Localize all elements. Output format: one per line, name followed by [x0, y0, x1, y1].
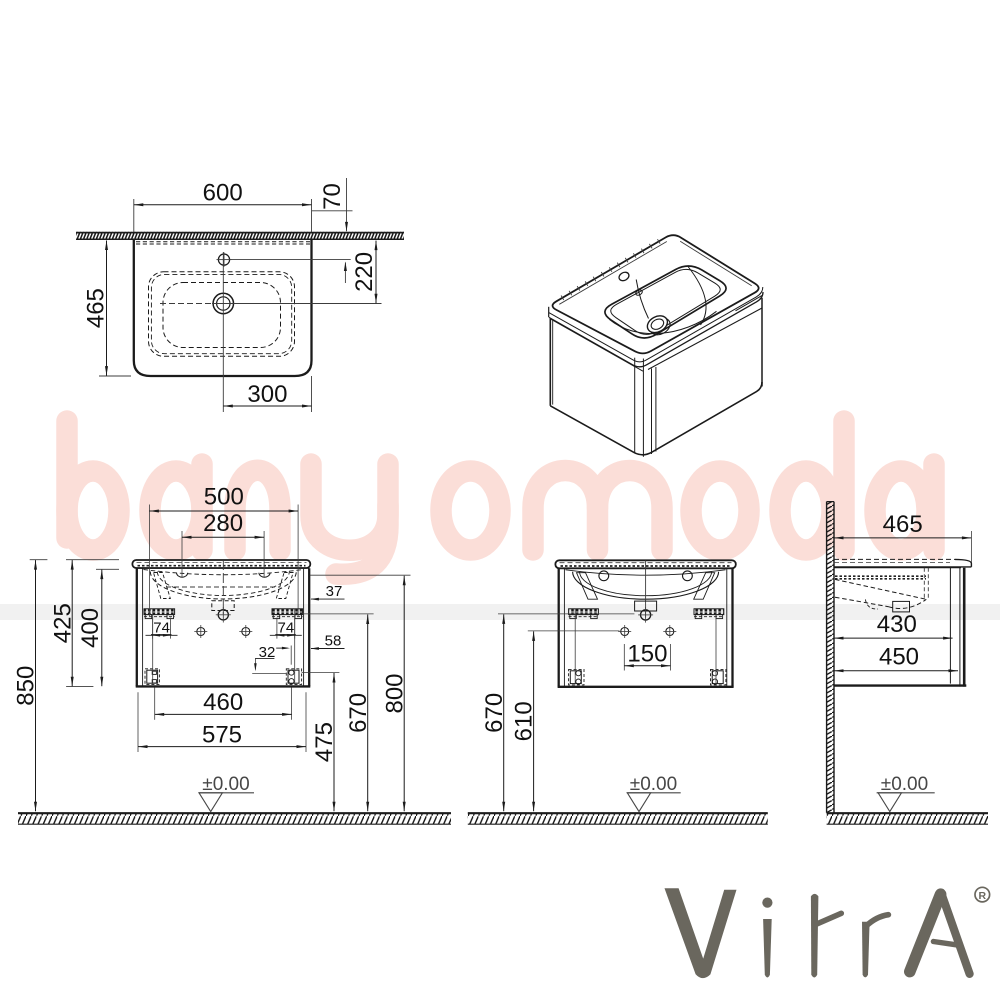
svg-text:500: 500 — [204, 484, 244, 511]
svg-text:850: 850 — [13, 666, 40, 706]
svg-text:74: 74 — [278, 619, 295, 636]
svg-text:±0.00: ±0.00 — [202, 774, 249, 795]
svg-text:575: 575 — [202, 721, 242, 748]
svg-text:37: 37 — [326, 583, 343, 600]
svg-text:475: 475 — [311, 722, 338, 762]
svg-text:450: 450 — [879, 644, 919, 671]
svg-text:425: 425 — [50, 603, 77, 643]
svg-text:465: 465 — [82, 288, 109, 328]
svg-text:670: 670 — [481, 693, 508, 733]
svg-text:58: 58 — [325, 632, 342, 649]
svg-text:74: 74 — [153, 619, 170, 636]
svg-text:220: 220 — [351, 252, 378, 292]
svg-text:±0.00: ±0.00 — [630, 774, 677, 795]
svg-text:±0.00: ±0.00 — [881, 774, 928, 795]
svg-text:400: 400 — [77, 608, 104, 648]
svg-text:70: 70 — [319, 183, 346, 210]
svg-text:465: 465 — [883, 511, 923, 538]
svg-text:R: R — [979, 890, 987, 902]
svg-text:460: 460 — [203, 689, 243, 716]
svg-text:150: 150 — [627, 641, 667, 668]
svg-text:430: 430 — [877, 611, 917, 638]
svg-text:600: 600 — [203, 180, 243, 207]
svg-text:610: 610 — [511, 701, 538, 741]
svg-text:670: 670 — [345, 693, 372, 733]
svg-text:800: 800 — [381, 673, 408, 713]
svg-text:280: 280 — [203, 510, 243, 537]
svg-text:300: 300 — [247, 381, 287, 408]
